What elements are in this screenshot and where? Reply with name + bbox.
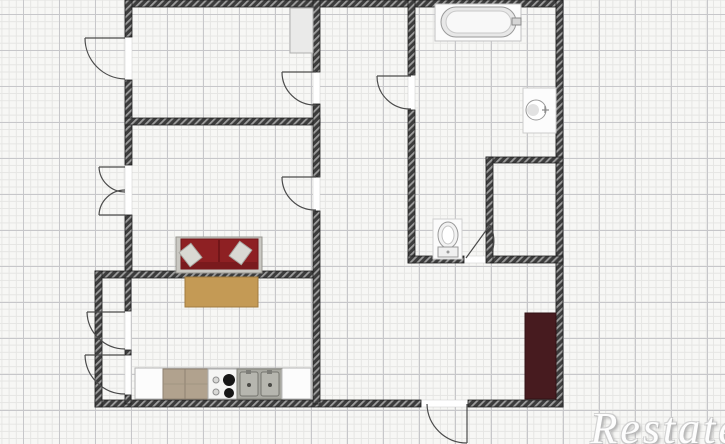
door-opening [125,165,132,215]
toilet-button[interactable] [447,251,450,254]
wall[interactable] [125,278,131,311]
wall[interactable] [556,0,563,407]
floor-plan-screen: Restate [0,0,725,444]
toilet-bowl-inner[interactable] [442,226,454,244]
wall[interactable] [492,256,563,263]
wall[interactable] [486,157,563,163]
door-closet-upper[interactable] [87,312,125,349]
wall[interactable] [125,0,132,37]
door-opening [125,37,132,80]
door-living-room[interactable] [282,177,316,210]
wall[interactable] [408,110,415,263]
table-dining[interactable] [185,277,258,307]
door-opening [421,400,468,407]
wall[interactable] [313,0,320,72]
bathtub-inner[interactable] [446,11,511,33]
wall[interactable] [408,0,415,75]
stove-burner-small-top[interactable] [213,377,219,383]
cabinet[interactable] [290,8,313,53]
door-upper-balcony[interactable] [85,38,125,79]
wall[interactable] [313,104,320,177]
wall[interactable] [486,157,493,263]
sink-drain-right[interactable] [268,383,272,387]
wardrobe[interactable] [525,313,556,399]
wall[interactable] [125,215,132,277]
door-bathroom[interactable] [377,76,411,109]
door-opening [313,177,320,211]
stove-burner-large-top[interactable] [223,374,235,386]
wall[interactable] [95,400,421,407]
door-closet-lower[interactable] [85,355,125,394]
stove-burner-small-bottom[interactable] [213,389,219,395]
door-french-lower-leaf[interactable] [99,190,125,215]
door-opening [313,72,320,104]
door-opening [408,75,415,110]
wall[interactable] [125,395,131,404]
stove-burner-large-bottom[interactable] [224,388,234,398]
sink-drain-left[interactable] [247,383,251,387]
door-entrance[interactable] [427,404,467,443]
boiler-dial-shade[interactable] [527,104,539,116]
wall[interactable] [313,211,320,404]
bathtub-faucet[interactable] [512,18,521,25]
wall[interactable] [468,400,563,407]
sink-faucet-right[interactable] [267,370,272,374]
door-opening [125,355,131,395]
wall[interactable] [125,118,320,125]
wall[interactable] [125,350,131,355]
door-opening [125,311,131,350]
sink-faucet-left[interactable] [246,370,251,374]
door-french-upper-leaf[interactable] [99,167,125,192]
door-top-left-room[interactable] [282,72,316,105]
floor-plan-canvas[interactable] [0,0,725,444]
